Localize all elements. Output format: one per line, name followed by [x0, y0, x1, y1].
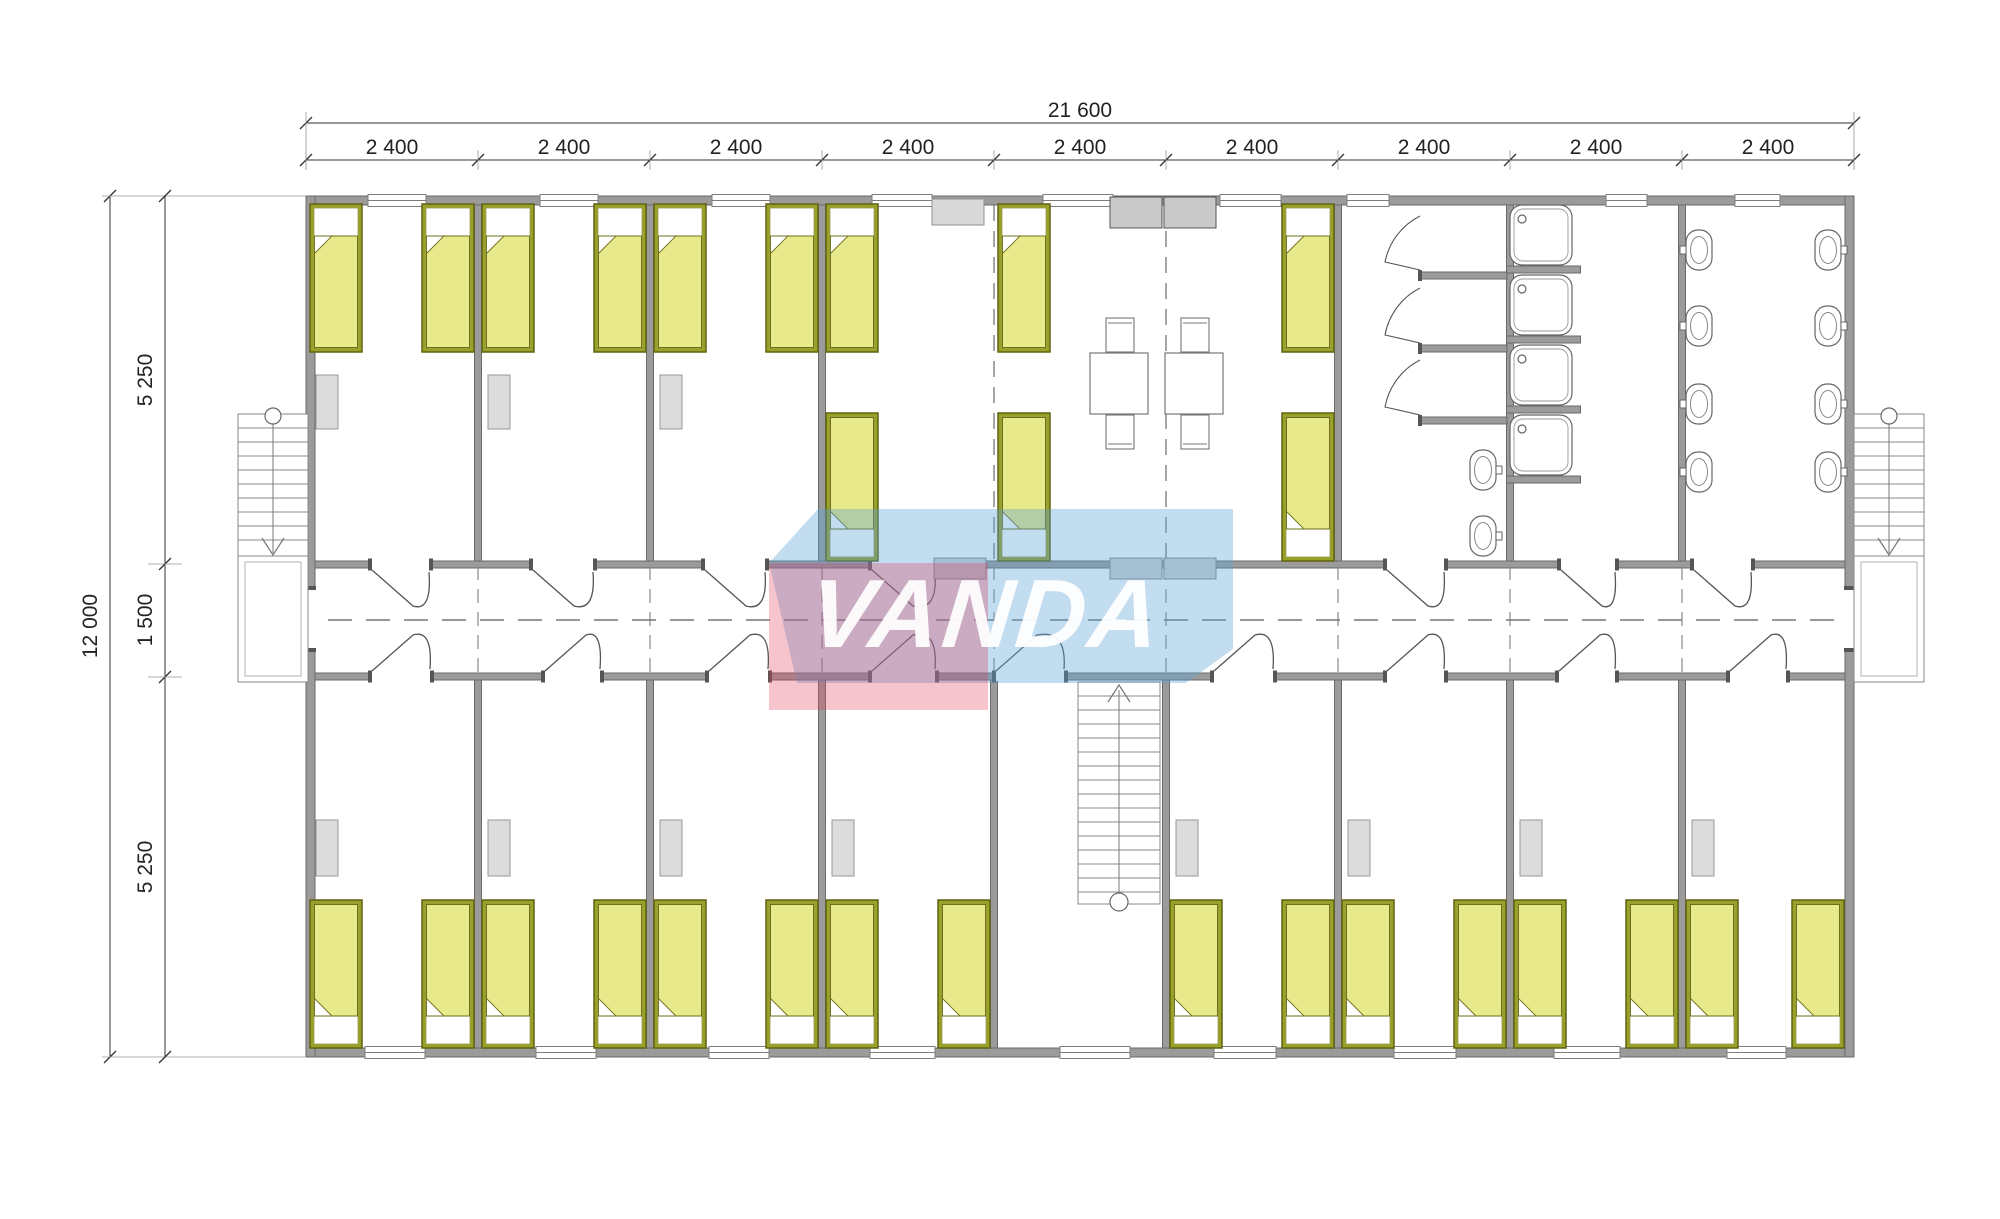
- door-jamb-cap: [1726, 671, 1730, 683]
- door-jamb-cap: [429, 559, 433, 571]
- door-leaf: [996, 634, 1064, 671]
- washbasin-tap: [1841, 322, 1847, 330]
- door-opening: [372, 672, 430, 681]
- door-jamb-cap: [1615, 671, 1619, 683]
- toilet-stall-door: [1385, 216, 1420, 270]
- stair-start-circle: [1881, 408, 1897, 424]
- bed-blanket: [315, 236, 358, 348]
- dimension-left-segment-2: 1 500: [134, 594, 157, 647]
- entry-landing-right: [1854, 556, 1924, 682]
- kitchen-counter: [1164, 197, 1216, 228]
- bed-blanket: [1459, 905, 1502, 1017]
- dimension-module-width: 2 400: [366, 136, 419, 159]
- door-jamb-cap: [1690, 559, 1694, 571]
- room-divider-wall-bottom: [819, 680, 826, 1048]
- washbasin-tap: [1680, 468, 1686, 476]
- bed-blanket: [599, 236, 642, 348]
- door-leaf: [872, 634, 935, 671]
- bed-blanket: [427, 236, 470, 348]
- door-opening: [1214, 672, 1273, 681]
- door-jamb-cap: [1786, 671, 1790, 683]
- door-opening: [872, 672, 935, 681]
- floor-plan-canvas: 21 600 12 000 5 250 1 500 5 250 2 4002 4…: [0, 0, 2000, 1219]
- room-divider-wall-top: [475, 205, 482, 561]
- bed-blanket: [599, 905, 642, 1017]
- door-jamb-cap: [430, 671, 434, 683]
- bed-blanket: [771, 905, 814, 1017]
- toilet-stall-door: [1385, 288, 1420, 343]
- room-divider-wall-bottom: [475, 680, 482, 1048]
- door-jamb-cap: [935, 671, 939, 683]
- door-jamb-cap: [1751, 559, 1755, 571]
- door-opening: [1559, 672, 1615, 681]
- door-opening: [709, 672, 768, 681]
- room-divider-wall-bottom: [1335, 680, 1342, 1048]
- dimension-module-width: 2 400: [1226, 136, 1279, 159]
- toilet-stall-door: [1385, 360, 1420, 415]
- shower-drain: [1518, 285, 1526, 293]
- shower-drain: [1518, 215, 1526, 223]
- bed-blanket: [315, 905, 358, 1017]
- bed-blanket: [1519, 905, 1562, 1017]
- room-divider-wall-top: [1335, 205, 1342, 561]
- washbasin-tap: [1496, 466, 1502, 474]
- bed-blanket: [487, 905, 530, 1017]
- door-jamb-cap: [1064, 671, 1068, 683]
- toilet-stall-partition: [1420, 272, 1507, 279]
- washbasin-tap: [1680, 322, 1686, 330]
- door-jamb-cap: [765, 559, 769, 571]
- door-leaf: [545, 634, 600, 671]
- door-jamb-cap: [529, 559, 533, 571]
- wardrobe: [660, 375, 682, 429]
- washbasin-tap: [1841, 468, 1847, 476]
- dimension-module-width: 2 400: [710, 136, 763, 159]
- radiator: [934, 558, 986, 579]
- stair-start-circle: [265, 408, 281, 424]
- stall-hinge-cap: [1418, 415, 1422, 426]
- wardrobe: [1520, 820, 1542, 876]
- shower-tray: [1510, 275, 1572, 335]
- room-divider-wall-bottom: [647, 680, 654, 1048]
- door-jamb-cap: [541, 671, 545, 683]
- dimension-module-width: 2 400: [538, 136, 591, 159]
- door-leaf: [1694, 570, 1751, 607]
- bed-blanket: [1287, 905, 1330, 1017]
- entry-opening-right: [1844, 590, 1855, 648]
- shower-drain: [1518, 425, 1526, 433]
- door-leaf: [705, 570, 765, 607]
- bed-blanket: [427, 905, 470, 1017]
- wardrobe: [1692, 820, 1714, 876]
- wardrobe: [1176, 820, 1198, 876]
- door-opening: [1387, 672, 1444, 681]
- door-opening: [533, 560, 593, 569]
- washbasin-tap: [1841, 400, 1847, 408]
- wardrobe: [660, 820, 682, 876]
- wardrobe: [316, 820, 338, 876]
- bed-blanket: [831, 236, 874, 348]
- room-divider-wall-bottom: [1507, 680, 1514, 1048]
- kitchen-counter: [1110, 197, 1162, 228]
- bed-blanket: [1003, 418, 1046, 530]
- bed-blanket: [1287, 418, 1330, 530]
- bed-blanket: [1175, 905, 1218, 1017]
- room-divider-wall-top: [647, 205, 654, 561]
- bed-blanket: [1631, 905, 1674, 1017]
- shower-tray: [1510, 345, 1572, 405]
- washbasin-tap: [1496, 532, 1502, 540]
- door-opening: [872, 560, 935, 569]
- dimension-total-width: 21 600: [1048, 99, 1112, 122]
- door-leaf: [709, 634, 768, 671]
- wardrobe: [316, 375, 338, 429]
- door-opening: [545, 672, 600, 681]
- door-jamb-cap: [600, 671, 604, 683]
- stall-hinge-cap: [1418, 343, 1422, 354]
- door-leaf: [1561, 570, 1615, 607]
- door-jamb-cap: [1383, 559, 1387, 571]
- shower-drain: [1518, 355, 1526, 363]
- door-opening: [996, 672, 1064, 681]
- room-divider-wall-top: [819, 205, 826, 561]
- door-jamb-cap: [701, 559, 705, 571]
- door-jamb-cap: [1615, 559, 1619, 571]
- door-jamb-cap: [1557, 559, 1561, 571]
- dimension-module-width: 2 400: [1570, 136, 1623, 159]
- door-jamb-cap: [992, 671, 996, 683]
- door-leaf: [1214, 634, 1273, 671]
- door-jamb-cap: [768, 671, 772, 683]
- bed-blanket: [487, 236, 530, 348]
- radiator: [1110, 558, 1162, 579]
- dimension-module-width: 2 400: [1742, 136, 1795, 159]
- bed-blanket: [1347, 905, 1390, 1017]
- door-leaf: [1387, 570, 1444, 607]
- shower-tray: [1510, 415, 1572, 475]
- dimension-module-width: 2 400: [882, 136, 935, 159]
- entry-landing-left: [238, 556, 308, 682]
- toilet-stall-partition: [1420, 417, 1507, 424]
- door-jamb-cap: [1273, 671, 1277, 683]
- washbasin-tap: [1680, 400, 1686, 408]
- floor-plan-drawing: 21 600 12 000 5 250 1 500 5 250 2 4002 4…: [0, 0, 2000, 1219]
- wardrobe: [488, 820, 510, 876]
- bed-blanket: [1691, 905, 1734, 1017]
- door-opening: [705, 560, 765, 569]
- bed-blanket: [1287, 236, 1330, 348]
- door-opening: [1387, 560, 1444, 569]
- shower-partition: [1507, 476, 1581, 483]
- door-opening: [1730, 672, 1786, 681]
- dimension-module-width: 2 400: [1398, 136, 1451, 159]
- shower-partition: [1507, 406, 1581, 413]
- room-divider-wall-bottom: [1163, 680, 1170, 1048]
- door-leaf: [1730, 634, 1786, 671]
- dimension-left-segment-1: 5 250: [134, 354, 157, 407]
- stall-hinge-cap: [1418, 270, 1422, 281]
- bed-blanket: [1797, 905, 1840, 1017]
- dining-table: [1165, 353, 1223, 414]
- plan-linework: [238, 195, 1924, 1059]
- door-jamb-cap: [1383, 671, 1387, 683]
- radiator: [1164, 558, 1216, 579]
- door-leaf: [1387, 634, 1444, 671]
- door-opening: [1561, 560, 1615, 569]
- room-divider-wall-bottom: [991, 680, 998, 1048]
- dimension-total-height: 12 000: [79, 594, 102, 658]
- toilet-stall-partition: [1420, 345, 1507, 352]
- wardrobe: [488, 375, 510, 429]
- stair-start-circle: [1110, 893, 1128, 911]
- door-jamb-cap: [1555, 671, 1559, 683]
- door-jamb-cap: [1444, 559, 1448, 571]
- shower-partition: [1507, 266, 1581, 273]
- bed-blanket: [943, 905, 986, 1017]
- door-jamb-cap: [593, 559, 597, 571]
- door-leaf: [1559, 634, 1615, 671]
- kitchen-cabinet: [932, 199, 984, 225]
- dimension-module-width: 2 400: [1054, 136, 1107, 159]
- shower-partition: [1507, 336, 1581, 343]
- door-leaf: [872, 570, 935, 607]
- door-leaf: [533, 570, 593, 607]
- room-divider-wall-bottom: [1679, 680, 1686, 1048]
- washbasin-tap: [1841, 246, 1847, 254]
- door-jamb-cap: [368, 671, 372, 683]
- bed-blanket: [659, 905, 702, 1017]
- bed-blanket: [659, 236, 702, 348]
- door-jamb-cap: [368, 559, 372, 571]
- door-opening: [1694, 560, 1751, 569]
- washbasin-tap: [1680, 246, 1686, 254]
- bed-blanket: [831, 905, 874, 1017]
- door-jamb-cap: [868, 671, 872, 683]
- room-divider-wall-top: [1679, 205, 1686, 561]
- door-jamb-cap: [1444, 671, 1448, 683]
- door-leaf: [372, 634, 430, 671]
- dining-table: [1090, 353, 1148, 414]
- wardrobe: [832, 820, 854, 876]
- door-opening: [372, 560, 429, 569]
- dimension-left-segment-3: 5 250: [134, 841, 157, 894]
- shower-tray: [1510, 205, 1572, 265]
- bed-blanket: [1003, 236, 1046, 348]
- door-jamb-cap: [1210, 671, 1214, 683]
- bed-blanket: [771, 236, 814, 348]
- door-jamb-cap: [705, 671, 709, 683]
- door-leaf: [372, 570, 429, 607]
- bed-blanket: [831, 418, 874, 530]
- wardrobe: [1348, 820, 1370, 876]
